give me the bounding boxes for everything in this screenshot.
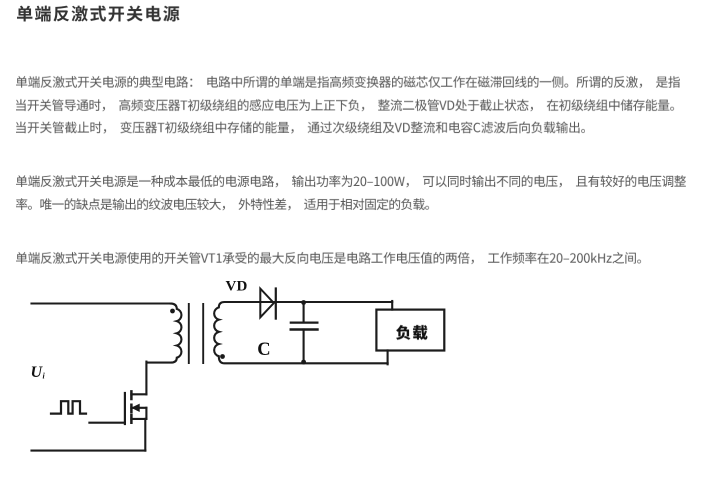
svg-text:C: C [257, 340, 270, 360]
svg-text:i: i [43, 372, 46, 381]
svg-text:VD: VD [226, 279, 248, 295]
